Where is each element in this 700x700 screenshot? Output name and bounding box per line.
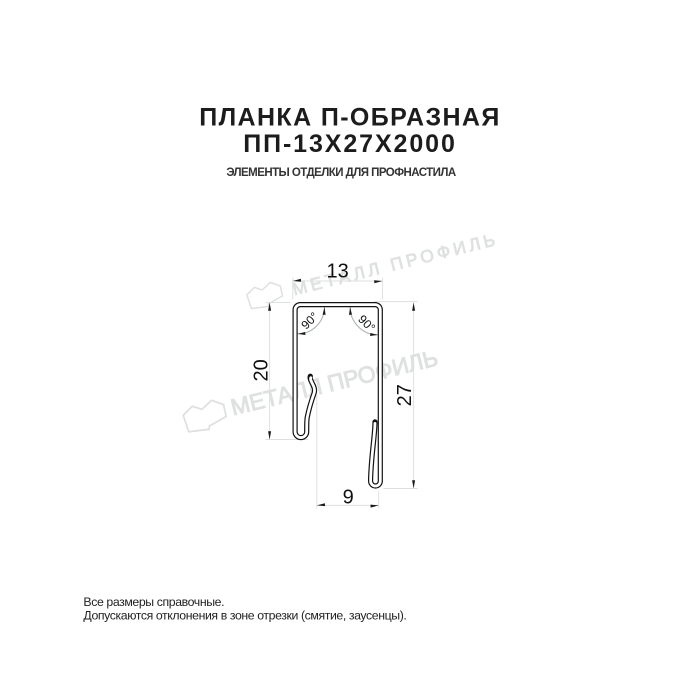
svg-text:90°: 90°: [298, 309, 321, 332]
svg-text:Все размеры справочные.: Все размеры справочные.: [83, 595, 224, 609]
svg-text:20: 20: [250, 359, 272, 381]
svg-text:90°: 90°: [355, 312, 378, 335]
svg-text:МЕТАЛЛ ПРОФИЛЬ: МЕТАЛЛ ПРОФИЛЬ: [290, 229, 500, 300]
svg-text:27: 27: [394, 384, 416, 406]
svg-text:13: 13: [326, 261, 348, 283]
svg-text:9: 9: [343, 486, 354, 508]
svg-text:Допускаются отклонения в зоне: Допускаются отклонения в зоне отрезки (с…: [83, 608, 406, 622]
svg-text:ПЛАНКА П-ОБРАЗНАЯ: ПЛАНКА П-ОБРАЗНАЯ: [199, 104, 501, 132]
svg-text:ЭЛЕМЕНТЫ ОТДЕЛКИ ДЛЯ ПРОФНАСТИ: ЭЛЕМЕНТЫ ОТДЕЛКИ ДЛЯ ПРОФНАСТИЛА: [226, 167, 456, 179]
svg-text:ПП-13Х27Х2000: ПП-13Х27Х2000: [243, 130, 457, 158]
